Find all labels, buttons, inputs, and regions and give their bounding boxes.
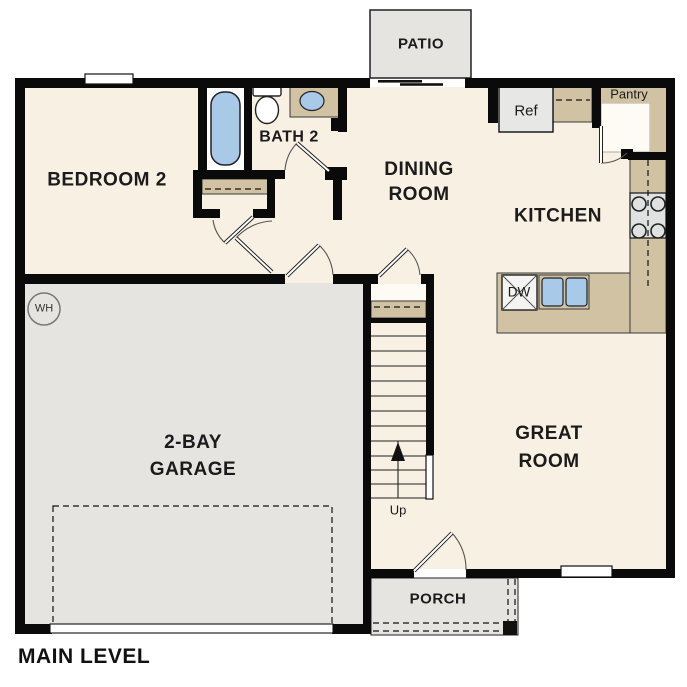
stairs-up-label: Up <box>390 498 407 523</box>
great-room-label-line2: ROOM <box>515 448 583 476</box>
patio-sliding-door <box>378 80 443 86</box>
great-room-window <box>561 566 612 577</box>
water-heater-label: WH <box>35 297 53 322</box>
floor-plan: BEDROOM 2 BATH 2 DINING ROOM KITCHEN GRE… <box>0 0 687 687</box>
sink-bowl-left <box>542 278 563 306</box>
garage-label: 2-BAY GARAGE <box>150 429 236 483</box>
great-room-label-line1: GREAT <box>515 420 583 448</box>
bathtub <box>211 92 240 165</box>
counter-ref-strip <box>553 87 592 122</box>
bath-sink <box>300 92 324 111</box>
pantry-side-shelf <box>650 103 666 152</box>
bedroom-window <box>85 74 133 84</box>
dining-room-label-line1: DINING <box>384 157 454 182</box>
kitchen-sink <box>539 275 589 309</box>
pantry-floor <box>601 103 650 152</box>
toilet <box>253 83 281 124</box>
floor-plan-drawing <box>0 0 687 687</box>
refrigerator-label: Ref <box>514 99 537 124</box>
dishwasher-label: DW <box>508 280 531 305</box>
plan-title: MAIN LEVEL <box>18 645 150 669</box>
dining-room-label-line2: ROOM <box>384 182 454 207</box>
kitchen-label: KITCHEN <box>514 204 602 229</box>
stair-handrail <box>426 455 433 499</box>
dining-room-label: DINING ROOM <box>384 157 454 207</box>
great-room-label: GREAT ROOM <box>515 420 583 476</box>
garage-label-line1: 2-BAY <box>150 429 236 456</box>
toilet-bowl <box>256 97 279 124</box>
pantry-label: Pantry <box>610 82 648 107</box>
patio-label: PATIO <box>398 32 444 57</box>
garage-overhead-door <box>50 624 333 633</box>
porch-label: PORCH <box>410 587 467 612</box>
bedroom-closet-shelf <box>202 179 268 194</box>
stair-closet-bar <box>371 318 426 323</box>
garage-label-line2: GARAGE <box>150 456 236 483</box>
bedroom2-label: BEDROOM 2 <box>47 168 167 193</box>
stair-landing <box>371 284 426 301</box>
porch-post <box>503 621 517 635</box>
closet-shelf <box>202 179 268 194</box>
bath2-label: BATH 2 <box>259 125 319 150</box>
stair-closet-shelf <box>371 301 426 318</box>
sink-bowl-right <box>566 278 587 306</box>
